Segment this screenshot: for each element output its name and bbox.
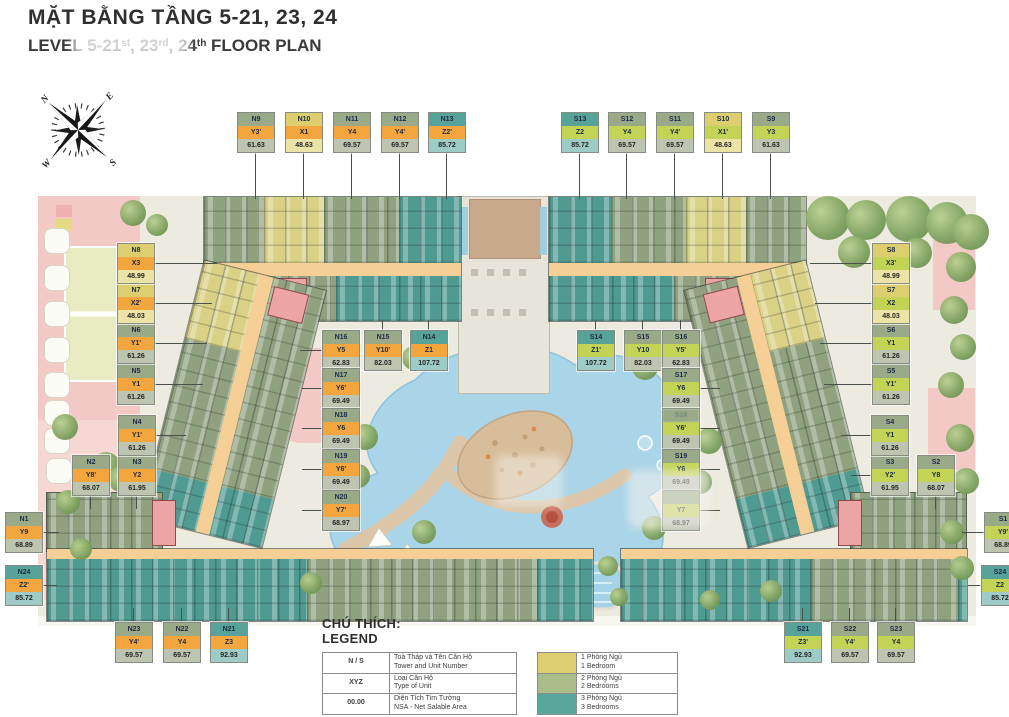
unit-type-code: Z1 [411, 344, 447, 357]
unit-net-area: 69.49 [323, 476, 359, 489]
unit-net-area: 69.57 [657, 139, 693, 152]
unit-net-area: 69.49 [323, 395, 359, 408]
tree-icon [950, 334, 976, 360]
unit-tower-number: N5 [118, 365, 154, 378]
compass-rose: N E S W [22, 80, 134, 180]
unit-type-code: Y1 [872, 429, 908, 442]
label-connector [136, 496, 137, 509]
unit-label-N6: N6Y1'61.26 [117, 323, 155, 364]
unit-net-area: 69.57 [116, 649, 152, 662]
unit-type-code: Y8 [918, 469, 954, 482]
unit-label-S24: S24Z285.72 [981, 565, 1009, 606]
water-feature-right [540, 207, 547, 255]
unit-tower-number: S12 [609, 113, 645, 126]
unit-tower-number: S17 [663, 369, 699, 382]
label-connector [155, 384, 203, 385]
unit-label-S2: S2Y868.07 [917, 455, 955, 496]
label-connector [815, 303, 872, 304]
label-connector [133, 608, 134, 622]
entrance-lobby [458, 196, 550, 394]
page-title-vietnamese: MẶT BẰNG TẦNG 5-21, 23, 24 [28, 6, 337, 30]
unit-label-S7: S7X248.03 [872, 283, 910, 324]
unit-net-area: 69.57 [609, 139, 645, 152]
label-connector [446, 153, 447, 199]
label-connector [303, 153, 304, 199]
unit-type-code: Y10 [625, 344, 661, 357]
unit-tower-number: N23 [116, 623, 152, 636]
label-connector [680, 320, 681, 330]
unit-net-area: 82.03 [365, 357, 401, 370]
unit-type-code: Y1' [873, 378, 909, 391]
unit-label-N19: N19Y6'69.49 [322, 449, 360, 490]
unit-label-S23: S23Y469.57 [877, 622, 915, 663]
core-north-lower [152, 500, 176, 546]
unit-net-area: 61.26 [118, 350, 154, 363]
label-connector [595, 320, 596, 330]
unit-type-code: Y6 [663, 382, 699, 395]
label-connector [820, 343, 872, 344]
unit-net-area: 68.97 [323, 517, 359, 530]
unit-net-area: 85.72 [429, 139, 465, 152]
label-connector [302, 469, 322, 470]
unit-type-code: Y4' [116, 636, 152, 649]
unit-net-area: 107.72 [411, 357, 447, 370]
label-connector [674, 153, 675, 199]
tree-icon [146, 214, 168, 236]
unit-label-S6: S6Y161.26 [872, 323, 910, 364]
unit-type-code: Y1 [873, 337, 909, 350]
unit-net-area: 68.89 [985, 539, 1009, 552]
unit-type-code: Y6' [323, 463, 359, 476]
unit-label-S10: S10X1'48.63 [704, 112, 742, 153]
unit-net-area: 48.03 [873, 310, 909, 323]
label-connector [962, 532, 984, 533]
label-connector [770, 153, 771, 199]
compass-west-label: W [40, 156, 55, 171]
unit-label-N14: N14Z1107.72 [410, 330, 448, 371]
unit-tower-number: N17 [323, 369, 359, 382]
unit-net-area: 61.26 [872, 442, 908, 455]
unit-net-area: 68.97 [663, 517, 699, 530]
unit-type-code: Y7' [323, 504, 359, 517]
unit-label-N12: N12Y4'69.57 [381, 112, 419, 153]
legend-heading-en: LEGEND [322, 631, 678, 646]
gazebo-icon [44, 301, 70, 327]
unit-type-code: X3' [873, 257, 909, 270]
unit-type-code: X2 [873, 297, 909, 310]
gazebo-icon [44, 372, 70, 398]
tennis-court [64, 246, 118, 382]
unit-net-area: 82.03 [625, 357, 661, 370]
unit-label-S20: Y768.97 [662, 490, 700, 531]
label-connector [428, 320, 429, 330]
gazebo-icon [44, 337, 70, 363]
unit-net-area: 61.95 [119, 482, 155, 495]
tree-icon [886, 196, 932, 242]
unit-net-area: 69.57 [164, 649, 200, 662]
label-connector [700, 428, 720, 429]
unit-tower-number: N16 [323, 331, 359, 344]
tree-icon [52, 414, 78, 440]
unit-net-area: 85.72 [562, 139, 598, 152]
unit-type-code: Y4 [164, 636, 200, 649]
unit-net-area: 61.26 [118, 391, 154, 404]
unit-net-area: 69.49 [663, 395, 699, 408]
unit-label-S3: S3Y2'61.95 [871, 455, 909, 496]
unit-label-N22: N22Y469.57 [163, 622, 201, 663]
unit-type-code: Y5' [663, 344, 699, 357]
unit-tower-number [663, 491, 699, 504]
label-connector [722, 153, 723, 199]
unit-net-area: 92.93 [211, 649, 247, 662]
unit-tower-number: S6 [873, 324, 909, 337]
unit-net-area: 85.72 [982, 592, 1009, 605]
label-connector [43, 532, 59, 533]
unit-label-N23: N23Y4'69.57 [115, 622, 153, 663]
unit-label-S8: S8X3'48.99 [872, 243, 910, 284]
unit-tower-number: N14 [411, 331, 447, 344]
unit-type-code: Y6 [663, 463, 699, 476]
unit-type-code: Y6' [323, 382, 359, 395]
unit-tower-number: N1 [6, 513, 42, 526]
tree-icon [938, 372, 964, 398]
unit-type-code: Y4 [609, 126, 645, 139]
unit-net-area: 68.07 [918, 482, 954, 495]
label-connector [181, 608, 182, 622]
unit-type-code: X3 [118, 257, 154, 270]
unit-net-area: 48.63 [286, 139, 322, 152]
unit-tower-number: S15 [625, 331, 661, 344]
unit-label-N18: N18Y669.49 [322, 408, 360, 449]
unit-net-area: 61.95 [872, 482, 908, 495]
unit-label-S11: S11Y4'69.57 [656, 112, 694, 153]
unit-net-area: 61.26 [119, 442, 155, 455]
page-title-english: LEVEL 5-21st, 23rd, 24th FLOOR PLAN [28, 36, 322, 56]
unit-label-N7: N7X2'48.03 [117, 283, 155, 324]
unit-net-area: 69.57 [382, 139, 418, 152]
unit-label-S5: S5Y1'61.26 [872, 364, 910, 405]
unit-type-code: Y9' [985, 526, 1009, 539]
unit-tower-number: N4 [119, 416, 155, 429]
tree-icon [953, 214, 989, 250]
unit-net-area: 61.63 [238, 139, 274, 152]
unit-net-area: 107.72 [578, 357, 614, 370]
label-connector [802, 608, 803, 622]
unit-net-area: 69.57 [832, 649, 868, 662]
unit-label-S14: S14Z1'107.72 [577, 330, 615, 371]
unit-type-code: Z3 [211, 636, 247, 649]
unit-label-N3: N3Y261.95 [118, 455, 156, 496]
unit-tower-number: N22 [164, 623, 200, 636]
unit-net-area: 69.49 [323, 435, 359, 448]
legend: CHÚ THÍCH: LEGEND N / S Toà Tháp và Tên … [322, 616, 678, 715]
label-connector [700, 469, 720, 470]
unit-tower-number: S13 [562, 113, 598, 126]
unit-type-code: Z2' [6, 579, 42, 592]
unit-tower-number: N19 [323, 450, 359, 463]
unit-label-S15: S15Y1082.03 [624, 330, 662, 371]
unit-net-area: 61.26 [873, 391, 909, 404]
label-connector [851, 475, 871, 476]
unit-type-code: Y2 [119, 469, 155, 482]
unit-tower-number: S3 [872, 456, 908, 469]
tree-icon [946, 424, 974, 452]
unit-tower-number: N13 [429, 113, 465, 126]
tree-icon [70, 538, 92, 560]
unit-type-code: Y3' [238, 126, 274, 139]
label-connector [156, 435, 186, 436]
tree-icon [598, 556, 618, 576]
unit-type-code: Y1' [119, 429, 155, 442]
unit-tower-number: S2 [918, 456, 954, 469]
label-connector [849, 608, 850, 622]
tree-icon [953, 468, 979, 494]
unit-type-code: Z2 [562, 126, 598, 139]
unit-type-code: Y6' [663, 422, 699, 435]
unit-type-code: Y4' [382, 126, 418, 139]
legend-color-table: 1 Phòng Ngủ1 Bedroom 2 Phòng Ngủ2 Bedroo… [537, 652, 678, 715]
label-connector [579, 153, 580, 199]
tree-icon [610, 588, 628, 606]
label-connector [700, 388, 720, 389]
unit-net-area: 92.93 [785, 649, 821, 662]
unit-net-area: 69.57 [334, 139, 370, 152]
tree-icon [300, 572, 322, 594]
unit-tower-number: N6 [118, 324, 154, 337]
unit-label-S22: S22Y4'69.57 [831, 622, 869, 663]
unit-tower-number: S22 [832, 623, 868, 636]
unit-tower-number: N24 [6, 566, 42, 579]
unit-type-code: X1' [705, 126, 741, 139]
unit-type-code: X2' [118, 297, 154, 310]
unit-type-code: Z3' [785, 636, 821, 649]
floor-plan-page: MẶT BẰNG TẦNG 5-21, 23, 24 LEVEL 5-21st,… [0, 0, 1009, 717]
unit-tower-number: N12 [382, 113, 418, 126]
unit-tower-number: S19 [663, 450, 699, 463]
unit-type-code: Y10' [365, 344, 401, 357]
unit-type-code: Y2' [872, 469, 908, 482]
unit-net-area: 68.07 [73, 482, 109, 495]
amenity-tile-pink [56, 205, 72, 217]
unit-tower-number: S21 [785, 623, 821, 636]
tree-icon [120, 200, 146, 226]
unit-net-area: 85.72 [6, 592, 42, 605]
unit-label-N20: N20Y7'68.97 [322, 490, 360, 531]
unit-label-N24: N24Z2'85.72 [5, 565, 43, 606]
unit-type-code: Y1 [118, 378, 154, 391]
unit-label-S9: S9Y361.63 [752, 112, 790, 153]
label-connector [968, 585, 981, 586]
unit-tower-number: S23 [878, 623, 914, 636]
unit-label-N21: N21Z392.93 [210, 622, 248, 663]
unit-type-code: Y4 [878, 636, 914, 649]
unit-tower-number: N9 [238, 113, 274, 126]
unit-type-code: Y4 [334, 126, 370, 139]
label-connector [382, 320, 383, 330]
label-connector [302, 388, 322, 389]
unit-label-S16: S16Y5'62.83 [662, 330, 700, 371]
unit-label-S13: S13Z285.72 [561, 112, 599, 153]
label-connector [935, 496, 936, 509]
unit-tower-number: S7 [873, 284, 909, 297]
unit-label-S21: S21Z3'92.93 [784, 622, 822, 663]
unit-tower-number: S5 [873, 365, 909, 378]
unit-net-area: 69.49 [663, 435, 699, 448]
unit-type-code: Z2 [982, 579, 1009, 592]
label-connector [351, 153, 352, 199]
unit-type-code: Y7 [663, 504, 699, 517]
unit-tower-number: N2 [73, 456, 109, 469]
compass-south-label: S [107, 157, 119, 168]
label-connector [810, 263, 872, 264]
unit-net-area: 69.49 [663, 476, 699, 489]
tree-icon [806, 196, 850, 240]
unit-label-N15: N15Y10'82.03 [364, 330, 402, 371]
unit-tower-number: S18 [663, 409, 699, 422]
unit-net-area: 48.63 [705, 139, 741, 152]
entrance-canopy [469, 199, 541, 259]
gazebo-icon [46, 458, 72, 484]
unit-tower-number: N7 [118, 284, 154, 297]
tree-icon [846, 200, 886, 240]
unit-tower-number: S9 [753, 113, 789, 126]
unit-tower-number: S1 [985, 513, 1009, 526]
tree-icon [760, 580, 782, 602]
unit-type-code: Y4' [657, 126, 693, 139]
unit-type-code: Y9 [6, 526, 42, 539]
unit-net-area: 68.89 [6, 539, 42, 552]
unit-net-area: 61.63 [753, 139, 789, 152]
unit-tower-number: S4 [872, 416, 908, 429]
compass-east-label: E [103, 90, 116, 103]
label-connector [155, 303, 212, 304]
south-tower-bottom-arm [620, 548, 968, 622]
label-connector [155, 343, 207, 344]
unit-label-N4: N4Y1'61.26 [118, 415, 156, 456]
unit-tower-number: N10 [286, 113, 322, 126]
unit-type-code: Z1' [578, 344, 614, 357]
unit-label-N1: N1Y968.89 [5, 512, 43, 553]
unit-tower-number: S24 [982, 566, 1009, 579]
label-connector [228, 608, 229, 622]
unit-tower-number: S16 [663, 331, 699, 344]
label-connector [255, 153, 256, 199]
unit-label-S12: S12Y469.57 [608, 112, 646, 153]
unit-tower-number: S10 [705, 113, 741, 126]
unit-net-area: 61.26 [873, 350, 909, 363]
unit-label-N17: N17Y6'69.49 [322, 368, 360, 409]
label-connector [43, 585, 57, 586]
unit-type-code: Y3 [753, 126, 789, 139]
unit-type-code: Z2' [429, 126, 465, 139]
label-connector [155, 263, 217, 264]
unit-type-code: Y6 [323, 422, 359, 435]
unit-tower-number: N20 [323, 491, 359, 504]
unit-label-S4: S4Y161.26 [871, 415, 909, 456]
unit-tower-number: N8 [118, 244, 154, 257]
unit-label-N9: N9Y3'61.63 [237, 112, 275, 153]
label-connector [399, 153, 400, 199]
jacuzzi [638, 436, 652, 450]
label-connector [626, 153, 627, 199]
label-connector [302, 510, 322, 511]
unit-label-N11: N11Y469.57 [333, 112, 371, 153]
unit-label-S1: S1Y9'68.89 [984, 512, 1009, 553]
unit-label-N10: N10X148.63 [285, 112, 323, 153]
label-connector [700, 510, 720, 511]
legend-key-table: N / S Toà Tháp và Tên Căn HộTower and Un… [322, 652, 517, 715]
label-connector [300, 350, 322, 351]
unit-tower-number: N11 [334, 113, 370, 126]
unit-net-area: 48.99 [873, 270, 909, 283]
label-connector [302, 428, 322, 429]
unit-label-S18: S18Y6'69.49 [662, 408, 700, 449]
unit-type-code: Y4' [832, 636, 868, 649]
tree-icon [940, 520, 964, 544]
tree-icon [700, 590, 720, 610]
gazebo-icon [44, 265, 70, 291]
label-connector [895, 608, 896, 622]
unit-label-N13: N13Z2'85.72 [428, 112, 466, 153]
unit-label-N5: N5Y161.26 [117, 364, 155, 405]
unit-tower-number: S8 [873, 244, 909, 257]
tree-icon [940, 296, 968, 324]
tree-icon [412, 520, 436, 544]
gazebo-icon [44, 228, 70, 254]
unit-tower-number: N21 [211, 623, 247, 636]
unit-tower-number: S11 [657, 113, 693, 126]
unit-tower-number: N18 [323, 409, 359, 422]
label-connector [841, 435, 871, 436]
unit-type-code: Y5 [323, 344, 359, 357]
unit-tower-number: S14 [578, 331, 614, 344]
tree-icon [950, 556, 974, 580]
label-connector [90, 496, 91, 509]
unit-tower-number: N15 [365, 331, 401, 344]
unit-label-N16: N16Y562.83 [322, 330, 360, 371]
core-south-lower [838, 500, 862, 546]
unit-type-code: Y8' [73, 469, 109, 482]
water-feature-left [461, 207, 468, 255]
tree-icon [946, 252, 976, 282]
label-connector [642, 320, 643, 330]
unit-type-code: X1 [286, 126, 322, 139]
unit-type-code: Y1' [118, 337, 154, 350]
unit-label-S19: S19Y669.49 [662, 449, 700, 490]
unit-label-N2: N2Y8'68.07 [72, 455, 110, 496]
unit-net-area: 48.03 [118, 310, 154, 323]
unit-label-N8: N8X348.99 [117, 243, 155, 284]
label-connector [824, 384, 872, 385]
unit-label-S17: S17Y669.49 [662, 368, 700, 409]
flower-feature-center [546, 511, 558, 523]
unit-net-area: 69.57 [878, 649, 914, 662]
unit-tower-number: N3 [119, 456, 155, 469]
unit-net-area: 48.99 [118, 270, 154, 283]
legend-heading-vi: CHÚ THÍCH: [322, 616, 678, 631]
